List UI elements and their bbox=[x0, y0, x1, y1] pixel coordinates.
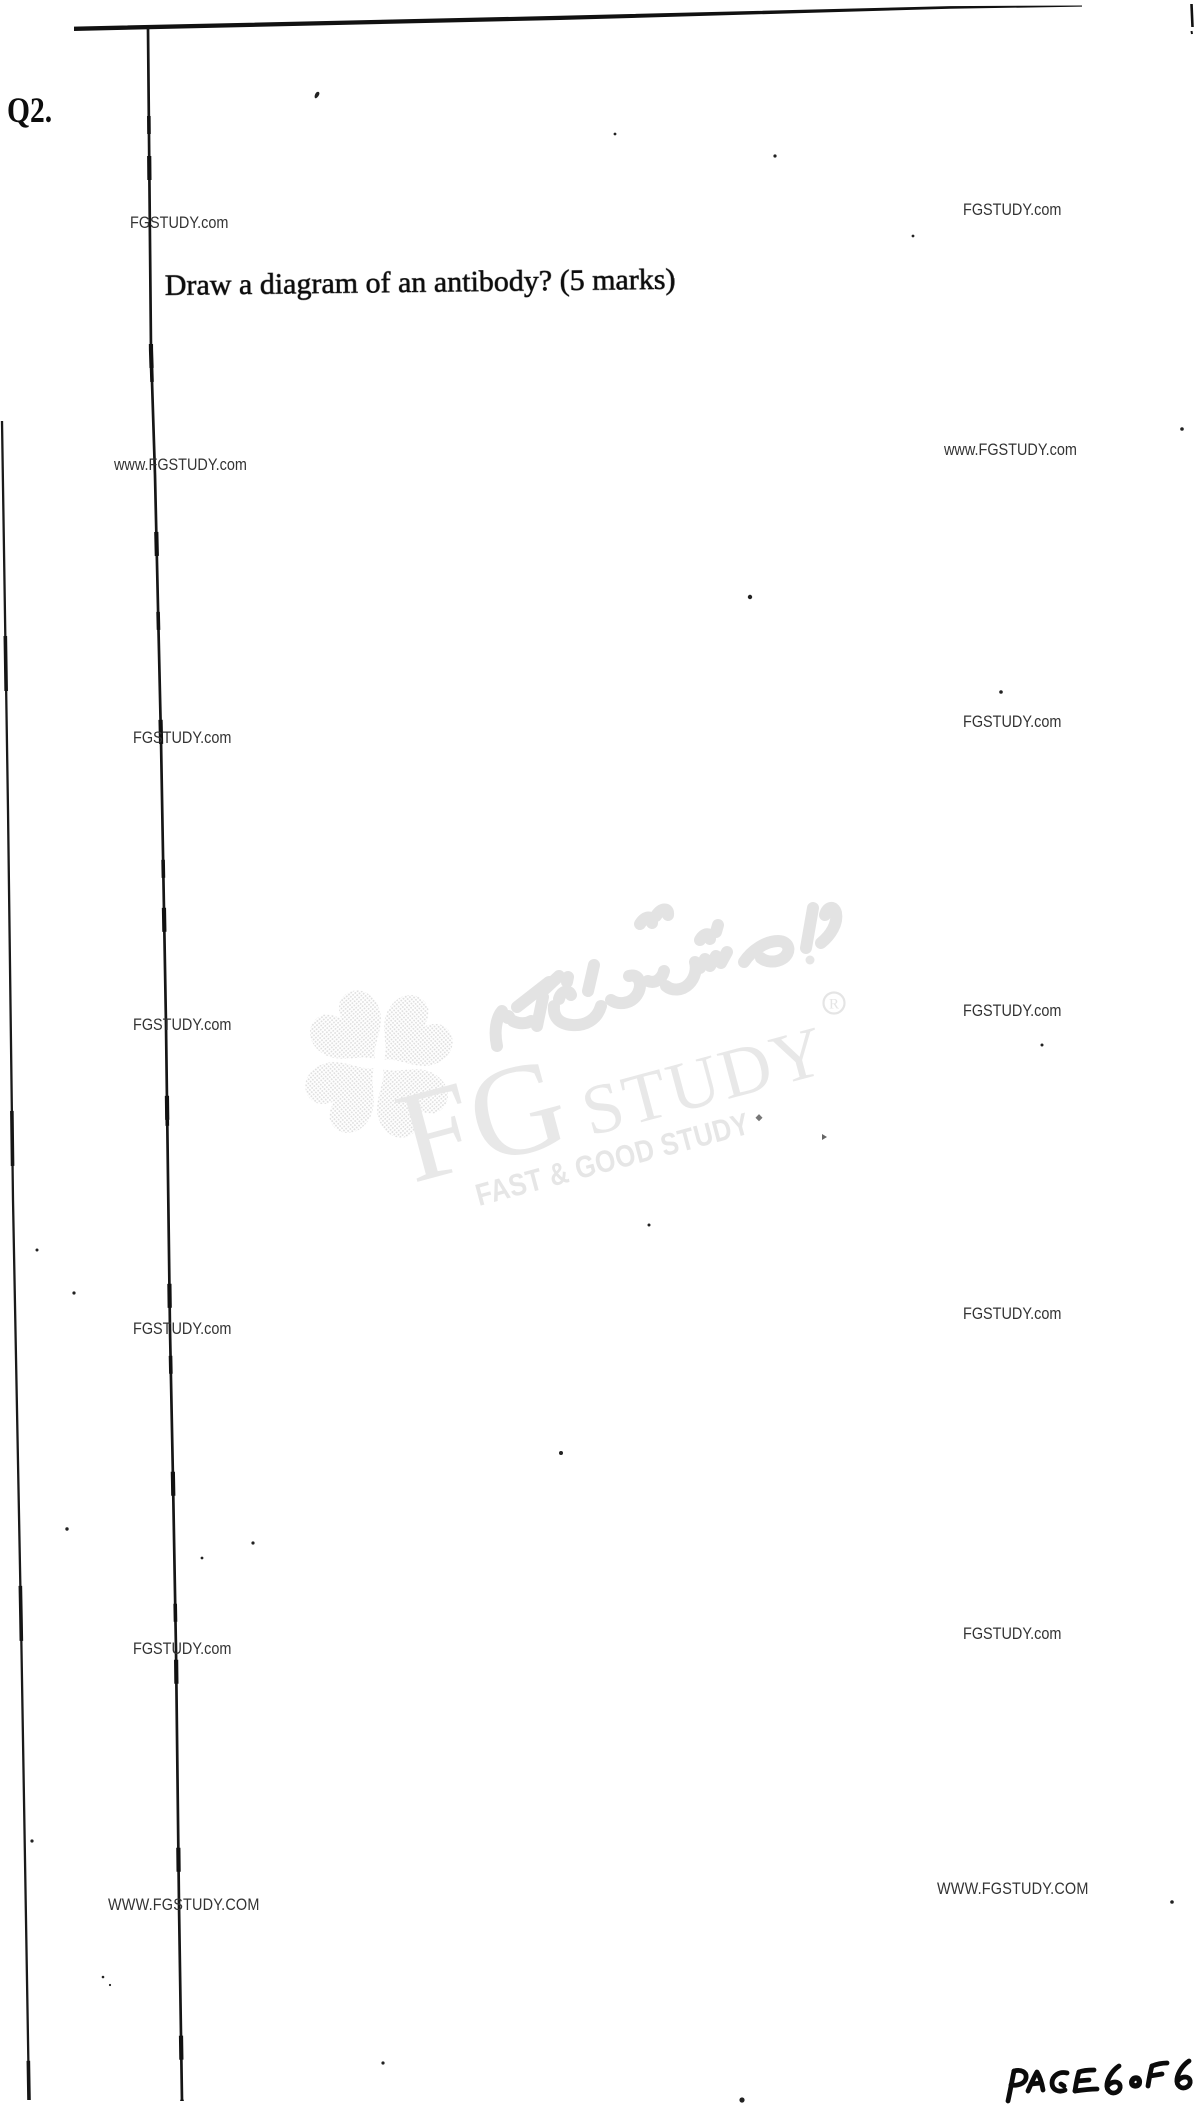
svg-text:R: R bbox=[829, 997, 839, 1013]
